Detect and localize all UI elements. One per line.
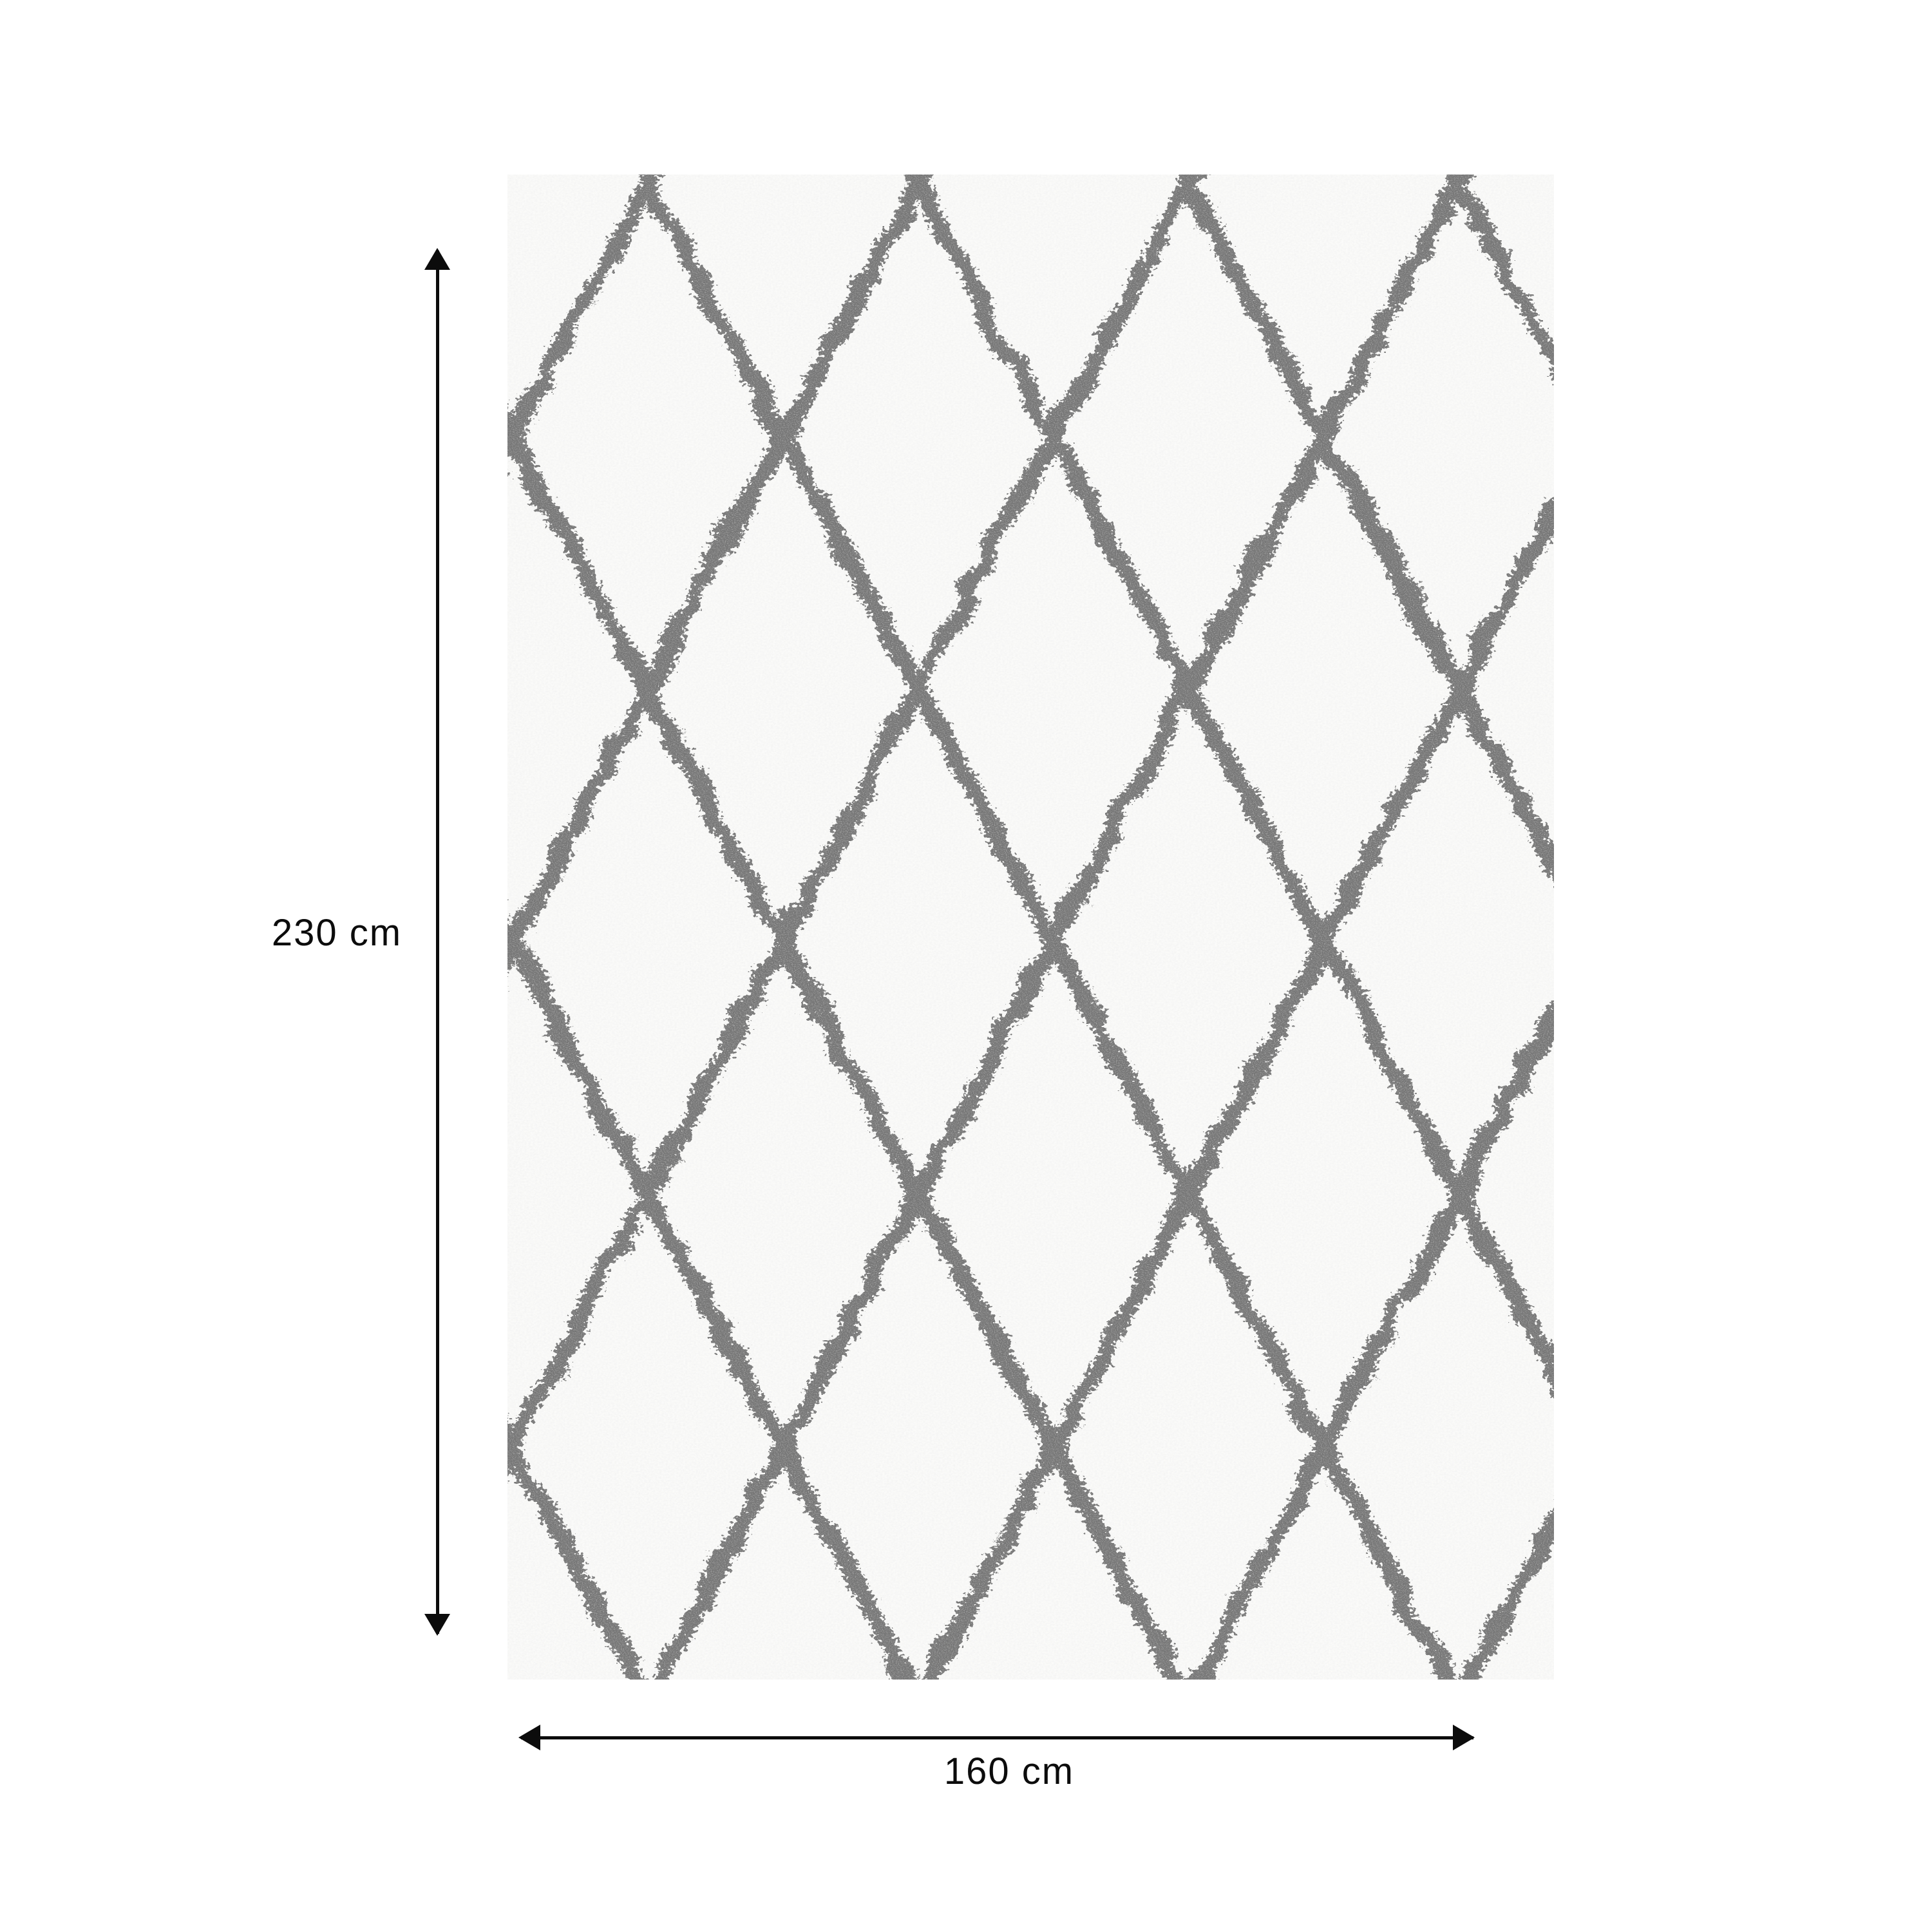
arrowhead-up-icon [424,248,450,270]
rug-image [507,175,1554,1680]
width-dimension-label: 160 cm [900,1749,1119,1794]
height-dimension-label: 230 cm [227,911,446,956]
product-dimension-diagram: 230 cm 160 cm [0,0,1932,1932]
width-dimension-line [521,1736,1473,1739]
arrowhead-left-icon [518,1725,540,1750]
arrowhead-right-icon [1453,1725,1475,1750]
rug-photo [507,175,1554,1680]
rug-fiber-highlights [507,175,1554,1680]
arrowhead-down-icon [424,1614,450,1636]
